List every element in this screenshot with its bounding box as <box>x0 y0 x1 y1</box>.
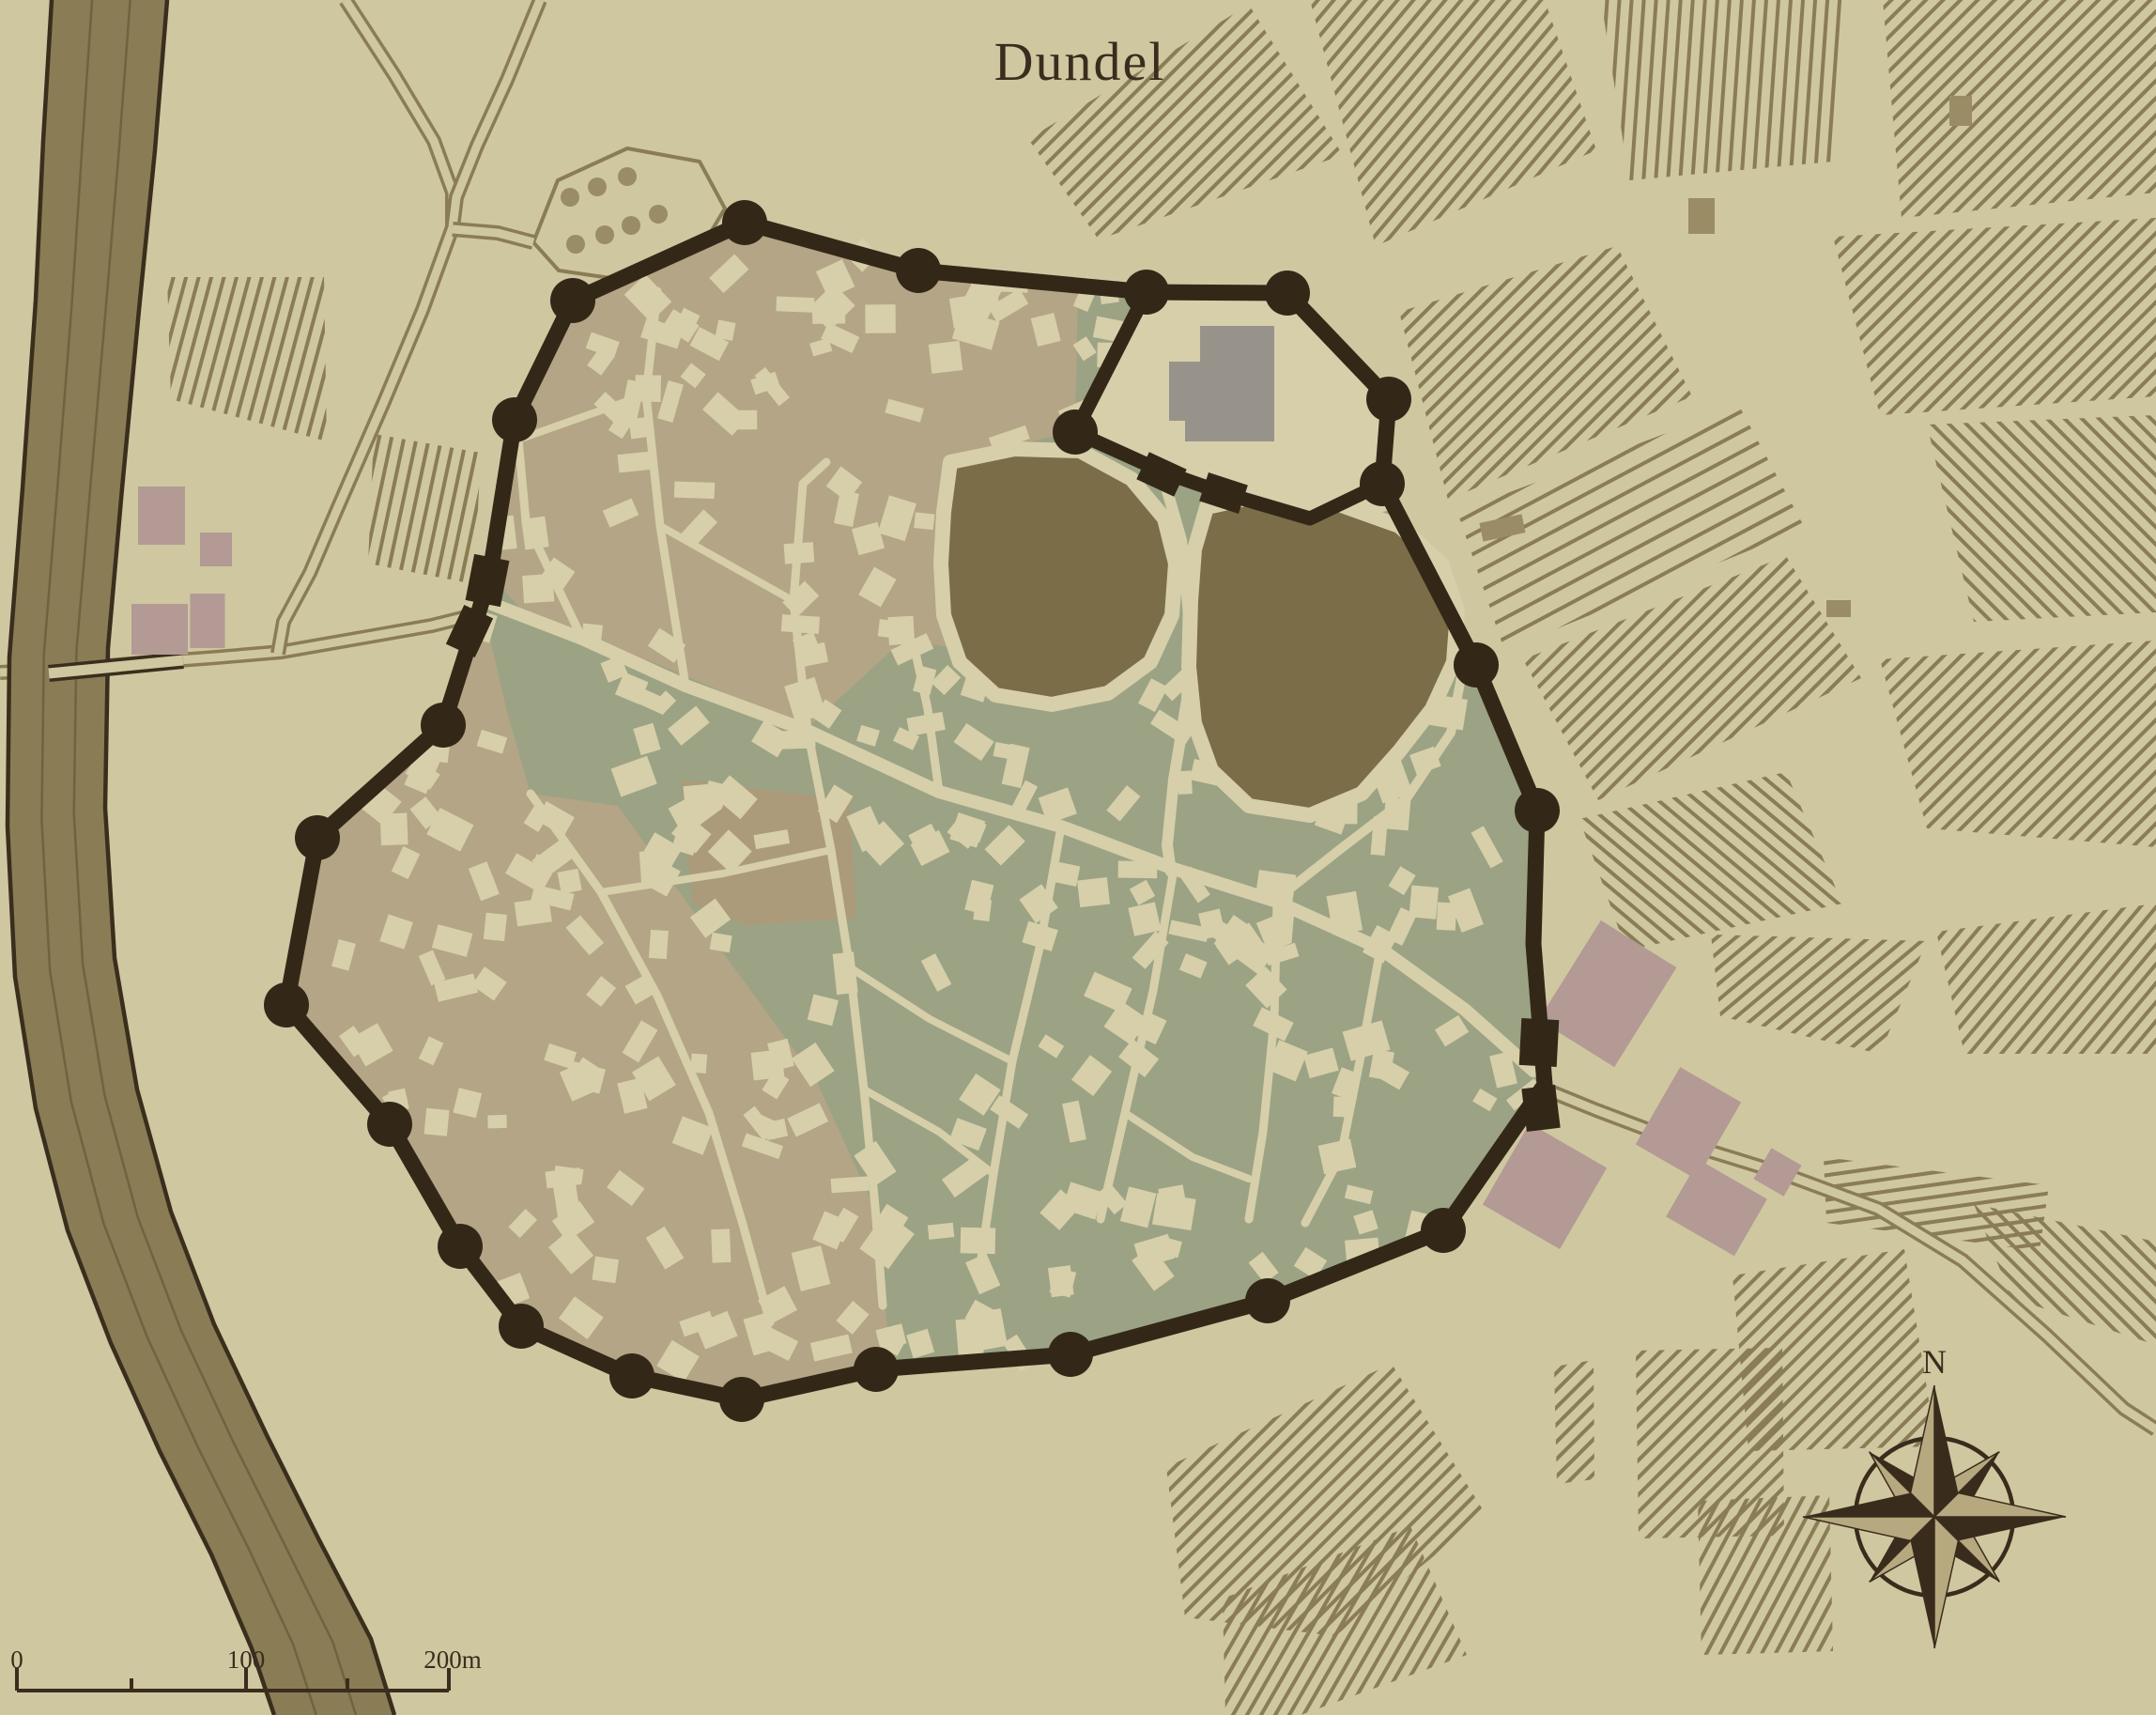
wall-tower <box>550 278 595 323</box>
wall-tower <box>1360 461 1405 506</box>
wall-tower <box>1366 377 1411 422</box>
wall-tower <box>854 1347 899 1392</box>
wall-tower <box>421 703 466 748</box>
suburb-building <box>138 487 185 545</box>
wall-tower <box>264 982 309 1027</box>
orchard-tree-dot <box>595 225 614 244</box>
orchard-tree-dot <box>588 178 607 196</box>
wall-tower <box>1265 270 1310 316</box>
wall-tower <box>499 1304 544 1349</box>
wall-tower <box>1245 1278 1290 1323</box>
wall-tower <box>295 815 340 860</box>
farm-building <box>1688 198 1715 234</box>
farm-building <box>1826 600 1851 617</box>
map-title: Dundel <box>994 31 1166 92</box>
wall-tower <box>719 1377 764 1422</box>
wall-tower <box>722 200 767 245</box>
wall-tower <box>1124 270 1169 315</box>
scale-label: 100 <box>227 1645 266 1674</box>
wall-tower <box>438 1224 483 1269</box>
wall-tower <box>1048 1332 1093 1377</box>
suburb-building <box>131 604 188 655</box>
suburb-building <box>191 594 225 648</box>
wall-tower <box>367 1102 412 1147</box>
wall-tower <box>1421 1208 1466 1253</box>
farm-building <box>1949 96 1972 126</box>
compass-north-label: N <box>1922 1343 1947 1381</box>
orchard-tree-dot <box>618 167 637 186</box>
wall-tower <box>492 397 537 442</box>
scale-label: 200m <box>423 1645 482 1674</box>
map-canvas: 0100200m Dundel N <box>0 0 2156 1715</box>
suburb-building <box>200 533 232 566</box>
map-layers: 0100200m <box>0 0 2156 1715</box>
wall-tower <box>1515 788 1560 833</box>
wall-tower <box>896 248 941 293</box>
wall-tower <box>1454 642 1499 688</box>
orchard-tree-dot <box>561 188 579 207</box>
orchard-tree-dot <box>566 235 585 254</box>
orchard-tree-dot <box>649 205 668 224</box>
town-map: 0100200m Dundel N <box>0 0 2156 1715</box>
town-pond-west <box>941 449 1176 704</box>
orchard-tree-dot <box>622 216 640 235</box>
wall-tower <box>1053 409 1098 455</box>
scale-label: 0 <box>10 1645 23 1674</box>
wall-gate <box>1519 1018 1560 1067</box>
wall-tower <box>609 1353 654 1398</box>
wall-gate <box>1521 1085 1560 1132</box>
